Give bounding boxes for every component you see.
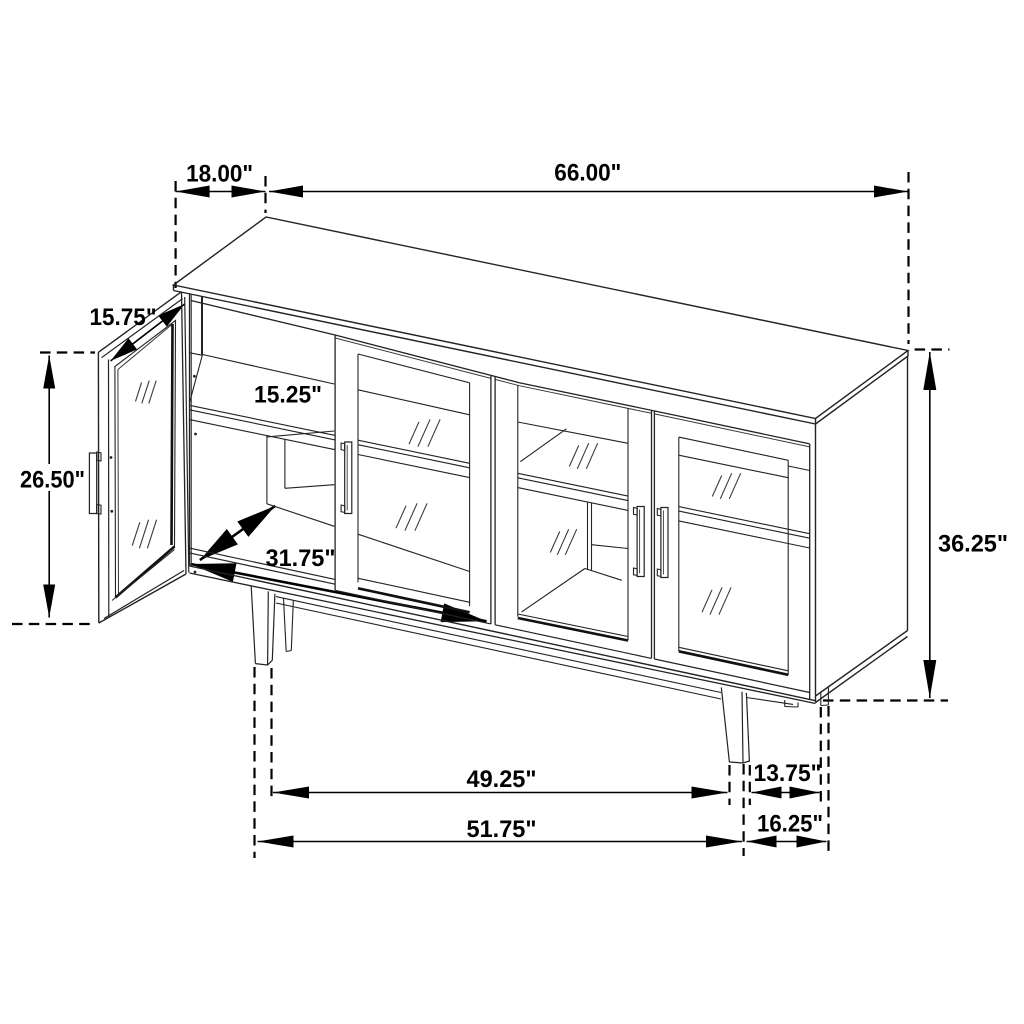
svg-text:49.25": 49.25" xyxy=(467,766,537,793)
svg-text:36.25": 36.25" xyxy=(938,531,1008,558)
svg-text:16.25": 16.25" xyxy=(757,811,823,838)
svg-text:15.25": 15.25" xyxy=(254,382,322,409)
svg-text:31.75": 31.75" xyxy=(266,545,336,572)
svg-text:26.50": 26.50" xyxy=(20,467,85,494)
svg-text:66.00": 66.00" xyxy=(554,160,621,187)
svg-text:13.75": 13.75" xyxy=(754,760,822,787)
svg-text:15.75": 15.75" xyxy=(90,304,157,331)
svg-text:51.75": 51.75" xyxy=(467,816,537,843)
svg-text:18.00": 18.00" xyxy=(186,161,253,188)
